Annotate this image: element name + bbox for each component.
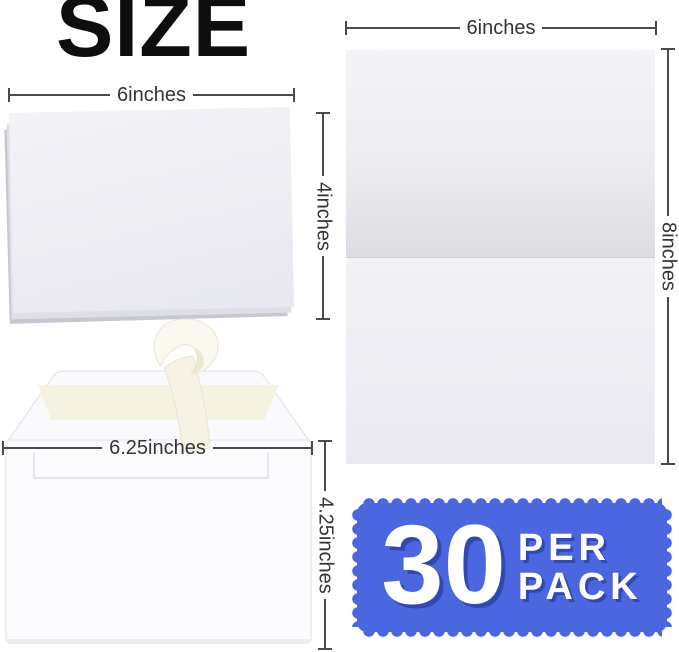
peel-strip	[138, 316, 238, 456]
dimension-line	[347, 27, 460, 29]
envelope-width-dimension: 6.25inches	[2, 437, 313, 459]
page-title: SIZE	[56, 0, 251, 70]
dimension-tick	[655, 21, 657, 35]
dimension-line	[10, 94, 110, 96]
dimension-line	[667, 50, 669, 216]
folded-card-height-dimension: 4inches	[312, 112, 334, 320]
flat-card-height-label: 8inches	[657, 216, 679, 297]
dimension-tick	[293, 88, 295, 102]
dimension-line	[542, 27, 655, 29]
folded-card-width-dimension: 6inches	[8, 84, 295, 106]
folded-card-width-label: 6inches	[110, 84, 193, 107]
dimension-line	[322, 256, 324, 318]
stamp-count: 30	[381, 516, 506, 615]
dimension-tick	[316, 318, 330, 320]
flat-card-top-half	[346, 50, 655, 257]
dimension-tick	[661, 463, 675, 465]
dimension-line	[322, 114, 324, 176]
flat-card-height-dimension: 8inches	[657, 48, 679, 465]
flat-card-width-dimension: 6inches	[345, 17, 657, 39]
product-size-diagram: SIZE 6inches 4inches 6inches	[0, 0, 679, 652]
flat-card-bottom-half	[346, 258, 655, 464]
folded-card-front-page	[9, 107, 294, 313]
stamp-scallop-top	[362, 498, 662, 504]
stamp-scallop-right	[666, 508, 672, 627]
dimension-line	[324, 599, 326, 648]
stamp-words: PER PACK	[518, 529, 643, 607]
flat-card-image	[346, 50, 655, 464]
folded-card-height-label: 4inches	[312, 176, 335, 257]
envelope-height-label: 4.25inches	[314, 491, 337, 600]
envelope-body	[6, 440, 311, 643]
stamp-scallop-left	[352, 508, 358, 627]
per-pack-stamp-badge: 30 PER PACK	[357, 503, 667, 632]
stamp-word-pack: PACK	[518, 568, 643, 607]
stamp-word-per: PER	[518, 529, 611, 568]
dimension-tick	[311, 441, 313, 455]
dimension-line	[213, 447, 311, 449]
envelope-width-label: 6.25inches	[102, 437, 213, 460]
dimension-tick	[318, 648, 332, 650]
dimension-line	[667, 297, 669, 463]
flat-card-width-label: 6inches	[460, 17, 543, 40]
folded-card-image	[8, 110, 292, 318]
envelope-bottom-shade	[7, 639, 310, 642]
dimension-line	[324, 442, 326, 491]
dimension-line	[193, 94, 293, 96]
dimension-line	[4, 447, 102, 449]
stamp-scallop-bottom	[362, 631, 662, 637]
envelope-height-dimension: 4.25inches	[314, 440, 336, 650]
